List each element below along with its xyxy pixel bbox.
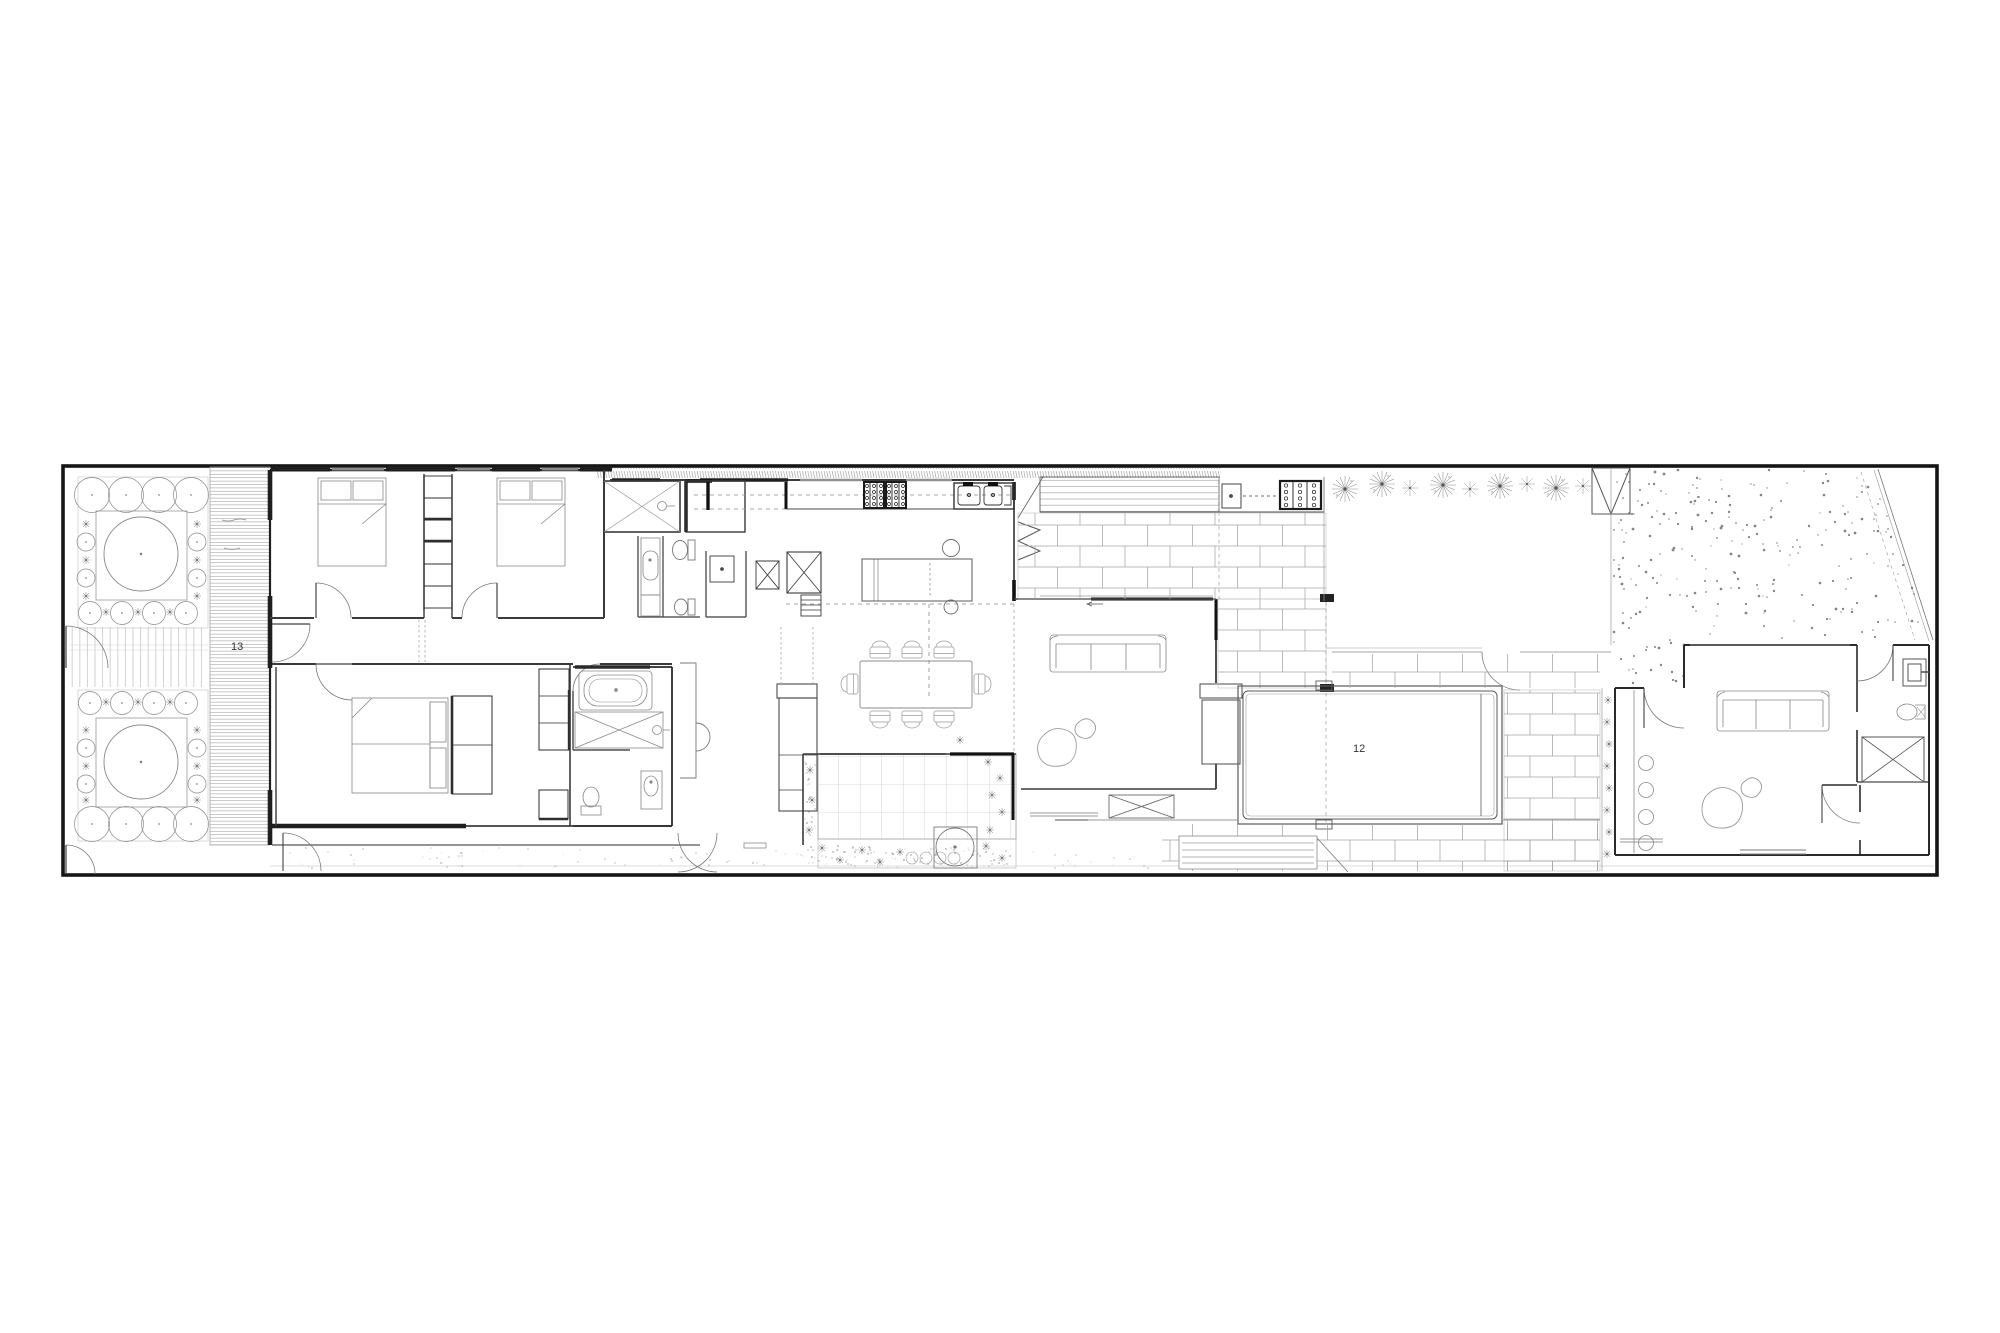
- svg-text:13: 13: [231, 641, 243, 653]
- svg-text:12: 12: [1353, 743, 1365, 755]
